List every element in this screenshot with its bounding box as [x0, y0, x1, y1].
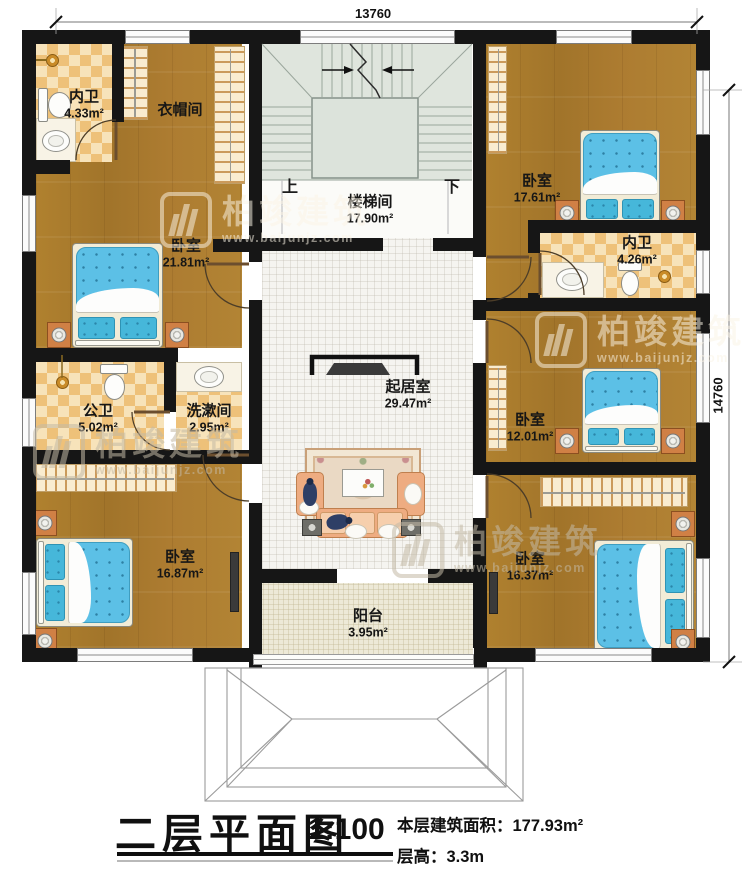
- window: [300, 30, 455, 44]
- stair-down-label: 下: [444, 173, 460, 197]
- bed-bedroom-tr: [580, 130, 660, 228]
- wall-bedroom-ml-bottom: [22, 348, 178, 362]
- bed-pillow: [120, 317, 156, 339]
- bed-pillow: [624, 428, 656, 445]
- stair-up-label: 上: [282, 173, 298, 197]
- label-neiwei1: 内卫4.33m²: [64, 90, 104, 121]
- sink: [42, 130, 70, 152]
- toilet-bowl: [104, 374, 125, 400]
- person-figure: [303, 482, 317, 506]
- wall-living-south-right: [428, 569, 487, 583]
- label-qijushi: 起居室29.47m²: [385, 380, 432, 411]
- label-bedroom-ml: 卧室21.81m²: [163, 239, 210, 270]
- wall-corridor-right-d: [473, 518, 486, 648]
- label-yimaojian: 衣帽间: [157, 103, 202, 120]
- label-yangtai: 阳台3.95m²: [348, 609, 388, 640]
- bed-headboard: [75, 340, 160, 346]
- title-underline: [117, 852, 393, 856]
- wall-corridor-right-c: [473, 363, 486, 475]
- plan-scale: 1:100: [308, 813, 385, 847]
- label-bedroom-br: 卧室16.37m²: [507, 552, 554, 583]
- bed-bedroom-ml: [72, 243, 163, 348]
- bed-headboard: [38, 541, 44, 625]
- shower-head: [56, 376, 69, 389]
- bedroom-br-closet: [540, 477, 688, 507]
- wall-gongwei-divider: [164, 362, 176, 412]
- window: [125, 30, 190, 44]
- sofa-pillow: [378, 524, 400, 539]
- nightstand: [33, 510, 57, 536]
- floor-area-note: 本层建筑面积：177.93m²: [397, 812, 583, 836]
- wall-neiwei1-right: [112, 44, 124, 122]
- floor-height-note: 层高：3.3m: [397, 843, 484, 867]
- wall-stair-bottom-left: [262, 238, 383, 251]
- window: [22, 195, 36, 252]
- cloakroom-wardrobe-left: [120, 46, 148, 120]
- bed-bedroom-mr: [582, 368, 661, 453]
- window: [696, 558, 710, 638]
- toilet-bowl: [621, 271, 639, 296]
- label-loutijian: 楼梯间17.90m²: [347, 195, 394, 226]
- toilet-tank: [38, 88, 48, 122]
- wall-gongwei-bottom: [22, 450, 262, 464]
- label-bedroom-tr: 卧室17.61m²: [514, 174, 561, 205]
- title-underline-shadow: [117, 860, 393, 862]
- window: [535, 648, 652, 662]
- shower-head: [46, 54, 59, 67]
- wall-corridor-left-a: [249, 44, 262, 262]
- bed-pillow: [588, 428, 620, 445]
- label-bedroom-bl: 卧室16.87m²: [157, 550, 204, 581]
- bed-bedroom-bl: [36, 538, 133, 627]
- wall-neiwei2-bottom: [486, 298, 696, 311]
- bedroom-mr-closet: [488, 365, 507, 451]
- bed-pillow: [586, 199, 618, 219]
- wall-neiwei2-top: [540, 220, 696, 233]
- wall-neiwei2-left-a: [528, 220, 540, 253]
- nightstand: [661, 428, 685, 454]
- nightstand: [165, 322, 189, 348]
- wall-corridor-left-b: [249, 300, 262, 453]
- bed-pillow: [665, 548, 686, 593]
- window: [696, 250, 710, 294]
- bed-pillow: [78, 317, 114, 339]
- wall-neiwei1-bottom: [22, 160, 70, 174]
- window: [22, 398, 36, 447]
- nightstand: [47, 322, 71, 348]
- side-table: [401, 519, 421, 536]
- label-gongwei: 公卫5.02m²: [78, 404, 118, 435]
- coffee-table: [342, 469, 384, 497]
- balcony-railing: [253, 654, 474, 665]
- window: [556, 30, 632, 44]
- wall-stair-bottom-right: [433, 238, 486, 251]
- bed-pillow: [45, 544, 65, 580]
- side-table: [302, 519, 322, 536]
- toilet-tank: [100, 364, 128, 374]
- dimension-top: 13760: [355, 6, 391, 21]
- nightstand: [555, 428, 579, 454]
- label-xishujian: 洗漱间2.95m²: [186, 404, 231, 435]
- bedroom-bl-closet: [34, 464, 177, 492]
- label-bedroom-mr: 卧室12.01m²: [507, 413, 554, 444]
- wall-bedroom-mr-bottom: [486, 462, 696, 475]
- dimension-right: 14760: [711, 377, 726, 413]
- floor-plan-canvas: 13760 14760 内卫4.33m² 衣帽间 楼梯间17.90m² 卧室17…: [0, 0, 750, 881]
- sink: [556, 268, 588, 291]
- window: [696, 333, 710, 423]
- bed-pillow: [622, 199, 654, 219]
- sink: [194, 366, 224, 388]
- sofa-pillow: [345, 524, 367, 539]
- wall-corridor-right-b: [473, 300, 486, 320]
- window: [696, 70, 710, 135]
- sofa-pillow: [404, 483, 422, 505]
- tv-bedroom-bl: [230, 552, 239, 612]
- cloakroom-wardrobe-right: [214, 46, 245, 184]
- window: [77, 648, 193, 662]
- shower-head: [658, 270, 671, 283]
- bed-pillow: [45, 585, 65, 621]
- bedroom-tr-closet: [488, 46, 507, 154]
- wall-outer-left: [22, 30, 36, 662]
- wall-corridor-right-a: [473, 44, 486, 257]
- nightstand: [671, 511, 695, 537]
- tv-bedroom-br: [489, 572, 498, 614]
- label-neiwei2: 内卫4.26m²: [617, 236, 657, 267]
- bed-headboard: [585, 446, 659, 451]
- wall-living-south-left: [249, 569, 337, 583]
- window: [22, 572, 36, 635]
